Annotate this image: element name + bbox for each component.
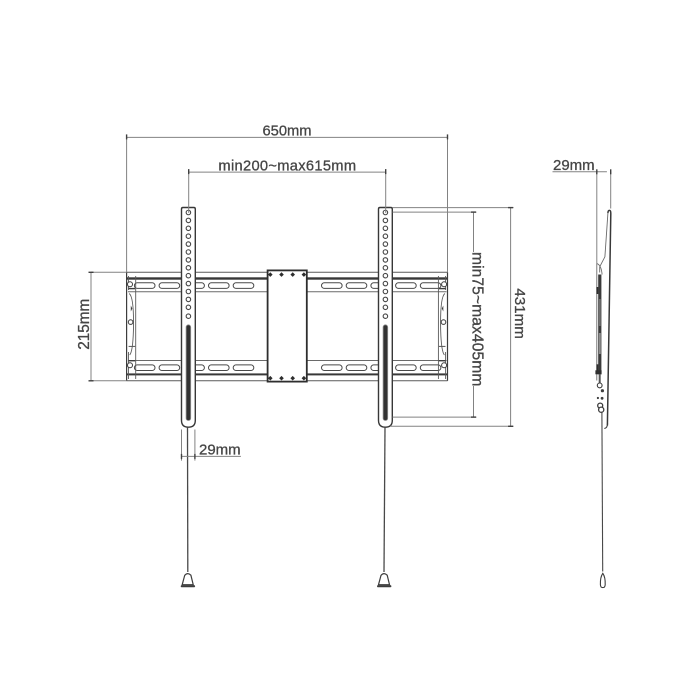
svg-text:min75~max405mm: min75~max405mm <box>469 252 486 386</box>
svg-text:min200~max615mm: min200~max615mm <box>218 158 356 174</box>
svg-text:29mm: 29mm <box>553 157 595 174</box>
svg-text:215mm: 215mm <box>76 299 93 350</box>
svg-text:650mm: 650mm <box>263 124 312 140</box>
svg-text:29mm: 29mm <box>199 442 241 459</box>
svg-text:431mm: 431mm <box>511 288 528 339</box>
